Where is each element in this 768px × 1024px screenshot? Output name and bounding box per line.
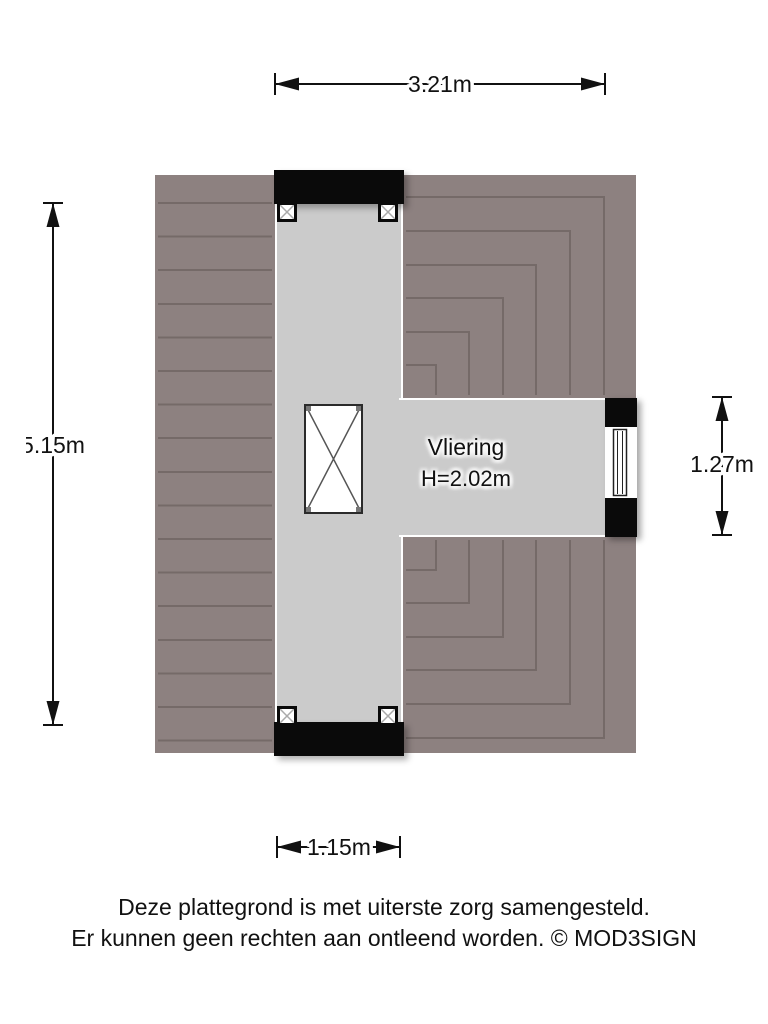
x-post-marker-icon: [378, 706, 398, 726]
disclaimer-line-2: Er kunnen geen rechten aan ontleend word…: [0, 923, 768, 954]
roof-hip-line: [406, 196, 605, 395]
wall-segment: [605, 398, 637, 427]
floorplan-page: Vliering H=2.02m 3.21m 5.15m 1.27m 1.15m…: [0, 0, 768, 1024]
wall-top: [274, 170, 404, 204]
disclaimer-line-1: Deze plattegrond is met uiterste zorg sa…: [0, 892, 768, 923]
dimension-bottom: 1.15m: [262, 833, 418, 861]
window-glazing-icon: [605, 427, 637, 498]
crossed-box-opening-icon: [304, 404, 363, 514]
disclaimer: Deze plattegrond is met uiterste zorg sa…: [0, 892, 768, 954]
dimension-left-label: 5.15m: [26, 432, 85, 458]
dimension-right-label: 1.27m: [692, 451, 754, 477]
window-wall: [605, 398, 637, 537]
dimension-top: 3.21m: [265, 70, 615, 98]
roof-stripe-pattern: [158, 202, 272, 743]
room-height: H=2.02m: [356, 463, 576, 495]
x-post-marker-icon: [277, 706, 297, 726]
dimension-bottom-label: 1.15m: [307, 834, 371, 860]
x-post-marker-icon: [277, 202, 297, 222]
roof-hip-line: [406, 540, 605, 739]
dimension-right: 1.27m: [692, 391, 762, 543]
x-post-marker-icon: [378, 202, 398, 222]
dimension-top-label: 3.21m: [408, 71, 472, 97]
room-label: Vliering H=2.02m: [356, 431, 576, 495]
wall-segment: [605, 498, 637, 537]
room-name: Vliering: [356, 431, 576, 463]
dimension-left: 5.15m: [26, 196, 90, 732]
